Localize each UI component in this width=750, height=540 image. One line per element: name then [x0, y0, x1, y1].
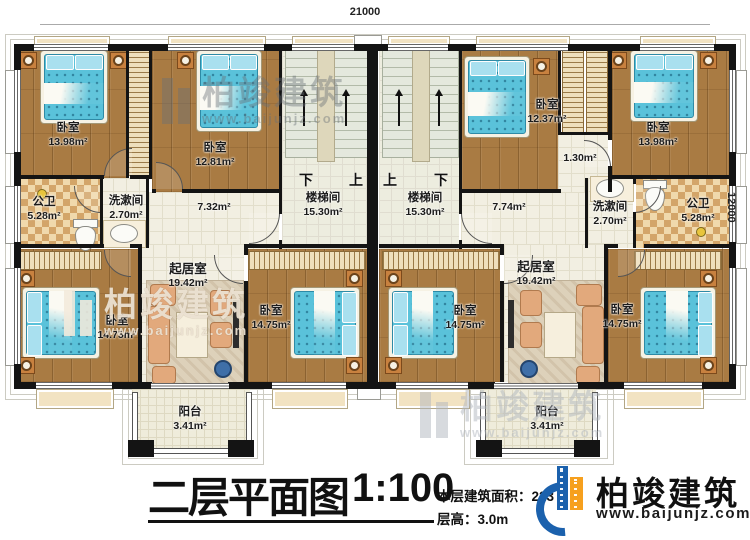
window	[624, 382, 702, 389]
armchair	[210, 322, 232, 348]
dimension-right: 12000	[725, 192, 737, 223]
window	[14, 268, 21, 364]
pillow	[665, 55, 693, 70]
bed	[630, 50, 698, 122]
wall	[468, 382, 495, 389]
bed	[196, 50, 262, 132]
wall	[138, 244, 142, 382]
room-label-bedroom-bl: 卧室 14.75m²	[97, 315, 136, 341]
window-sill	[624, 389, 704, 409]
room-label-wash-left: 洗漱间 2.70m²	[109, 195, 144, 221]
stair-direction-down: 下	[299, 170, 313, 190]
wall	[228, 382, 256, 389]
balcony-post	[476, 440, 502, 457]
stair-direction-up: 上	[349, 170, 363, 190]
wall	[608, 166, 612, 192]
room-label-hall-right: 7.74m²	[492, 201, 525, 213]
floor-height-text: 层高：3.0m	[437, 508, 508, 528]
wall	[633, 212, 636, 248]
window	[14, 186, 21, 242]
pillow	[636, 55, 664, 70]
wardrobe	[382, 251, 500, 270]
up-arrow-icon	[438, 96, 440, 126]
bed	[640, 287, 716, 359]
wardrobe	[586, 46, 608, 134]
wall	[126, 44, 129, 178]
balcony-post	[574, 440, 600, 457]
window-sill	[36, 389, 114, 409]
room-label-bedroom-bml: 卧室 14.75m²	[251, 305, 290, 331]
window	[34, 44, 108, 51]
room-label-bath-left: 公卫 5.28m²	[27, 196, 60, 222]
window	[729, 268, 736, 364]
round-table	[214, 360, 232, 378]
coffee-table	[544, 312, 576, 358]
balcony-door	[151, 383, 229, 389]
floor-plan-sheet: 21000 12000	[0, 0, 750, 540]
wall	[500, 281, 504, 382]
sofa	[148, 306, 170, 364]
wardrobe	[248, 251, 366, 270]
window	[476, 44, 568, 51]
room-label-stair-left: 楼梯间 15.30m²	[303, 192, 342, 218]
bed	[22, 287, 100, 359]
room-label-bedroom-br: 卧室 14.75m²	[602, 304, 641, 330]
pillow	[46, 55, 74, 70]
room-label-hall-left: 7.32m²	[197, 201, 230, 213]
wall	[182, 189, 282, 193]
balcony-post	[128, 440, 154, 457]
stair-stringer	[317, 48, 335, 162]
wall	[152, 189, 156, 193]
wall-party	[367, 44, 378, 389]
pillow	[75, 55, 103, 70]
pillow	[230, 55, 257, 70]
tv	[233, 300, 239, 348]
ceiling-lamp-icon	[696, 227, 706, 237]
room-label-bedroom-tl2: 卧室 12.81m²	[195, 142, 234, 168]
pillow	[27, 292, 42, 323]
stair-stringer	[412, 48, 430, 162]
nightstand	[20, 52, 37, 69]
title-underline	[148, 520, 434, 523]
nightstand	[700, 357, 717, 374]
wall	[130, 175, 152, 179]
room-label-balcony-right: 阳台 3.41m²	[530, 406, 563, 432]
window	[396, 382, 468, 389]
window-bay	[736, 186, 747, 244]
balcony-post	[228, 440, 254, 457]
pillow	[27, 325, 42, 356]
window-sill	[272, 389, 348, 409]
wall	[244, 281, 248, 382]
nightstand	[700, 52, 717, 69]
room-label-bedroom-tr2: 卧室 13.98m²	[638, 122, 677, 148]
sheet-title: 二层平面图	[148, 464, 348, 525]
wall	[558, 132, 608, 135]
armchair	[520, 290, 542, 316]
room-label-bedroom-bmr: 卧室 14.75m²	[445, 305, 484, 331]
up-arrow-icon	[303, 96, 305, 126]
pillow	[342, 325, 357, 356]
nightstand	[385, 270, 402, 287]
window	[14, 70, 21, 152]
wall	[100, 178, 103, 248]
pillow	[393, 325, 408, 356]
sink	[110, 224, 138, 243]
logo-tower-blue	[557, 466, 568, 510]
room-label-living-left: 起居室 19.42m²	[168, 262, 207, 289]
pillow	[202, 55, 229, 70]
logo-tower-orange	[570, 477, 583, 510]
nightstand	[346, 357, 363, 374]
room-label-bedroom-tl: 卧室 13.98m²	[48, 122, 87, 148]
nightstand	[610, 52, 627, 69]
window	[168, 44, 264, 51]
up-arrow-icon	[345, 96, 347, 126]
roof-notch	[357, 388, 381, 400]
pillow	[470, 61, 497, 76]
window	[272, 382, 346, 389]
room-label-bedroom-tr1: 卧室 12.37m²	[527, 99, 566, 125]
up-arrow-icon	[398, 96, 400, 126]
nightstand	[177, 52, 194, 69]
pillow	[698, 292, 713, 323]
wall	[14, 244, 104, 248]
window	[388, 44, 448, 51]
wall	[379, 244, 504, 248]
armchair	[210, 290, 232, 316]
pillow	[393, 292, 408, 323]
nightstand	[533, 58, 550, 75]
wardrobe	[634, 251, 722, 270]
dimension-line-top	[40, 24, 710, 25]
bed	[464, 56, 530, 138]
wall	[125, 382, 152, 389]
nightstand	[385, 357, 402, 374]
bed	[40, 50, 108, 124]
room-label-balcony-left: 阳台 3.41m²	[173, 406, 206, 432]
stair-direction-down: 下	[434, 170, 448, 190]
armchair	[152, 366, 176, 384]
wall	[608, 44, 612, 140]
nightstand	[110, 52, 127, 69]
window	[292, 44, 354, 51]
window	[36, 382, 112, 389]
room-label-stair-right: 楼梯间 15.30m²	[405, 192, 444, 218]
wall	[577, 382, 605, 389]
stair-direction-up: 上	[383, 170, 397, 190]
coffee-table	[176, 312, 208, 358]
pillow	[698, 325, 713, 356]
sofa	[576, 284, 602, 306]
pillow	[342, 292, 357, 323]
sofa	[582, 306, 604, 364]
wall	[612, 175, 736, 179]
wall	[585, 178, 588, 248]
window-sill	[396, 389, 470, 409]
wardrobe	[18, 251, 102, 270]
round-table	[520, 360, 538, 378]
window-bay	[736, 268, 747, 366]
wall	[146, 178, 149, 248]
balcony-door	[494, 383, 578, 389]
room-label-wash-right: 洗漱间 2.70m²	[593, 201, 628, 227]
dimension-top: 21000	[350, 6, 381, 18]
tv	[508, 300, 514, 348]
wall	[461, 189, 561, 193]
brand-url: www.baijunjz.com	[596, 505, 750, 522]
wall	[644, 244, 736, 248]
room-label-living-right: 起居室 19.42m²	[516, 260, 555, 287]
window	[640, 44, 714, 51]
building-logo-icon	[536, 464, 594, 532]
room-label-bath-right: 公卫 5.28m²	[681, 198, 714, 224]
nightstand	[700, 270, 717, 287]
window	[729, 70, 736, 152]
wall	[149, 44, 152, 178]
wall	[606, 244, 618, 248]
armchair	[520, 322, 542, 348]
room-label-closet-right: 1.30m²	[563, 152, 596, 164]
nightstand	[346, 270, 363, 287]
wall	[14, 175, 104, 179]
bed	[290, 287, 360, 359]
wall	[130, 244, 142, 248]
wall	[244, 244, 369, 248]
window-bay	[736, 70, 747, 154]
pillow	[498, 61, 525, 76]
